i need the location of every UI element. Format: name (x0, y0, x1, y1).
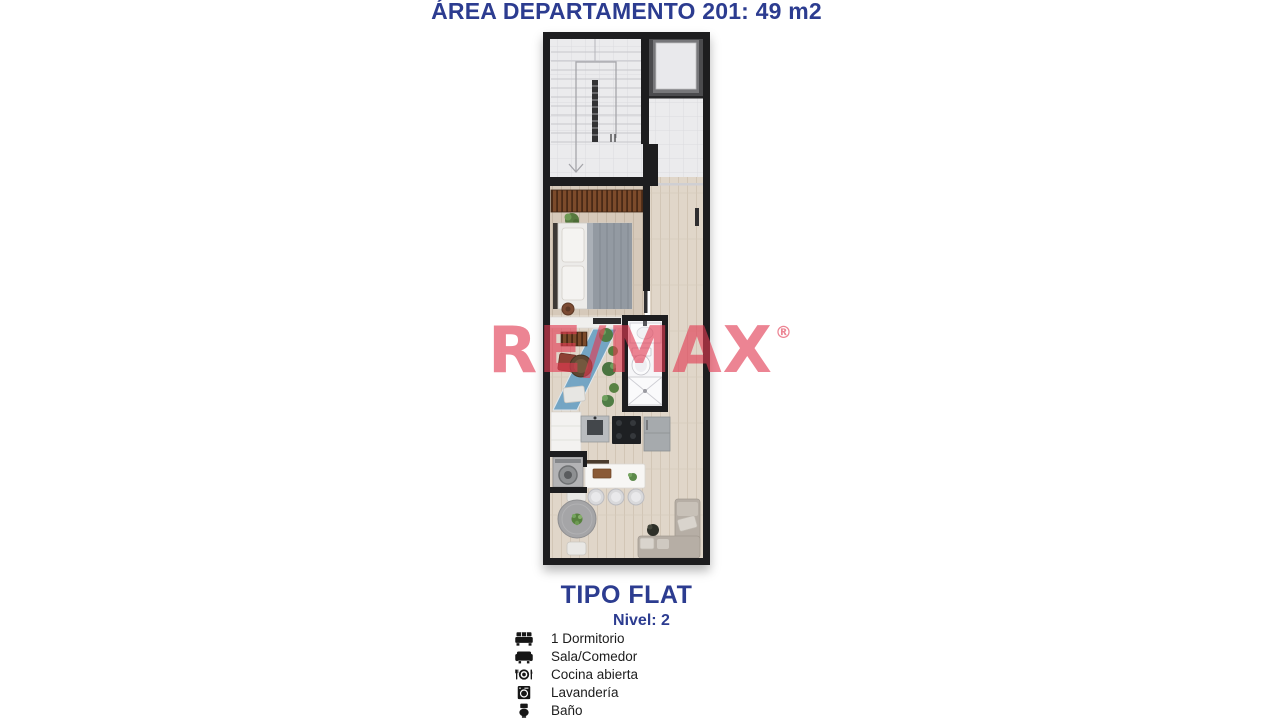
washing-machine (553, 457, 583, 487)
entry-threshold (658, 183, 703, 186)
shower (628, 377, 662, 405)
cooktop (612, 416, 641, 444)
bar-stools (588, 489, 644, 505)
bedroom (551, 190, 645, 315)
patio-chair (563, 386, 585, 403)
elevator (649, 36, 703, 99)
island (585, 460, 645, 488)
legend-item: Baño (512, 701, 638, 719)
plan-caption: TIPO FLAT Nivel: 2 (0, 581, 1253, 630)
counter (551, 412, 581, 454)
page-title: ÁREA DEPARTAMENTO 201: 49 m2 (0, 0, 1253, 25)
cutlery-icon (512, 667, 536, 682)
plan-level-label: Nivel: 2 (0, 612, 1253, 630)
legend-item-label: Lavandería (551, 685, 619, 700)
sofa-icon (512, 649, 536, 664)
bed-icon (512, 631, 536, 646)
legend-item: 1 Dormitorio (512, 629, 638, 647)
legend-item-label: Baño (551, 703, 583, 718)
legend-item-label: 1 Dormitorio (551, 631, 625, 646)
floor-plan (543, 32, 710, 565)
legend-item: Lavandería (512, 683, 638, 701)
legend: 1 Dormitorio Sala/Comedor Cocina abierta… (512, 629, 638, 719)
legend-item: Cocina abierta (512, 665, 638, 683)
tv-console (593, 318, 621, 324)
toilet (632, 348, 651, 375)
kitchen-sink (581, 416, 609, 442)
legend-item-label: Sala/Comedor (551, 649, 637, 664)
entry-door-leaf (695, 208, 699, 226)
plan-type-label: TIPO FLAT (0, 581, 1253, 610)
bed (553, 223, 632, 309)
washing-machine-icon (512, 685, 536, 700)
dining-chair (567, 542, 586, 555)
legend-item: Sala/Comedor (512, 647, 638, 665)
crate (561, 332, 587, 346)
bedroom-door-leaf (644, 291, 648, 313)
legend-item-label: Cocina abierta (551, 667, 638, 682)
toilet-icon (512, 703, 536, 718)
fridge (644, 417, 670, 451)
registered-mark: ® (775, 323, 792, 343)
wardrobe (551, 190, 645, 212)
